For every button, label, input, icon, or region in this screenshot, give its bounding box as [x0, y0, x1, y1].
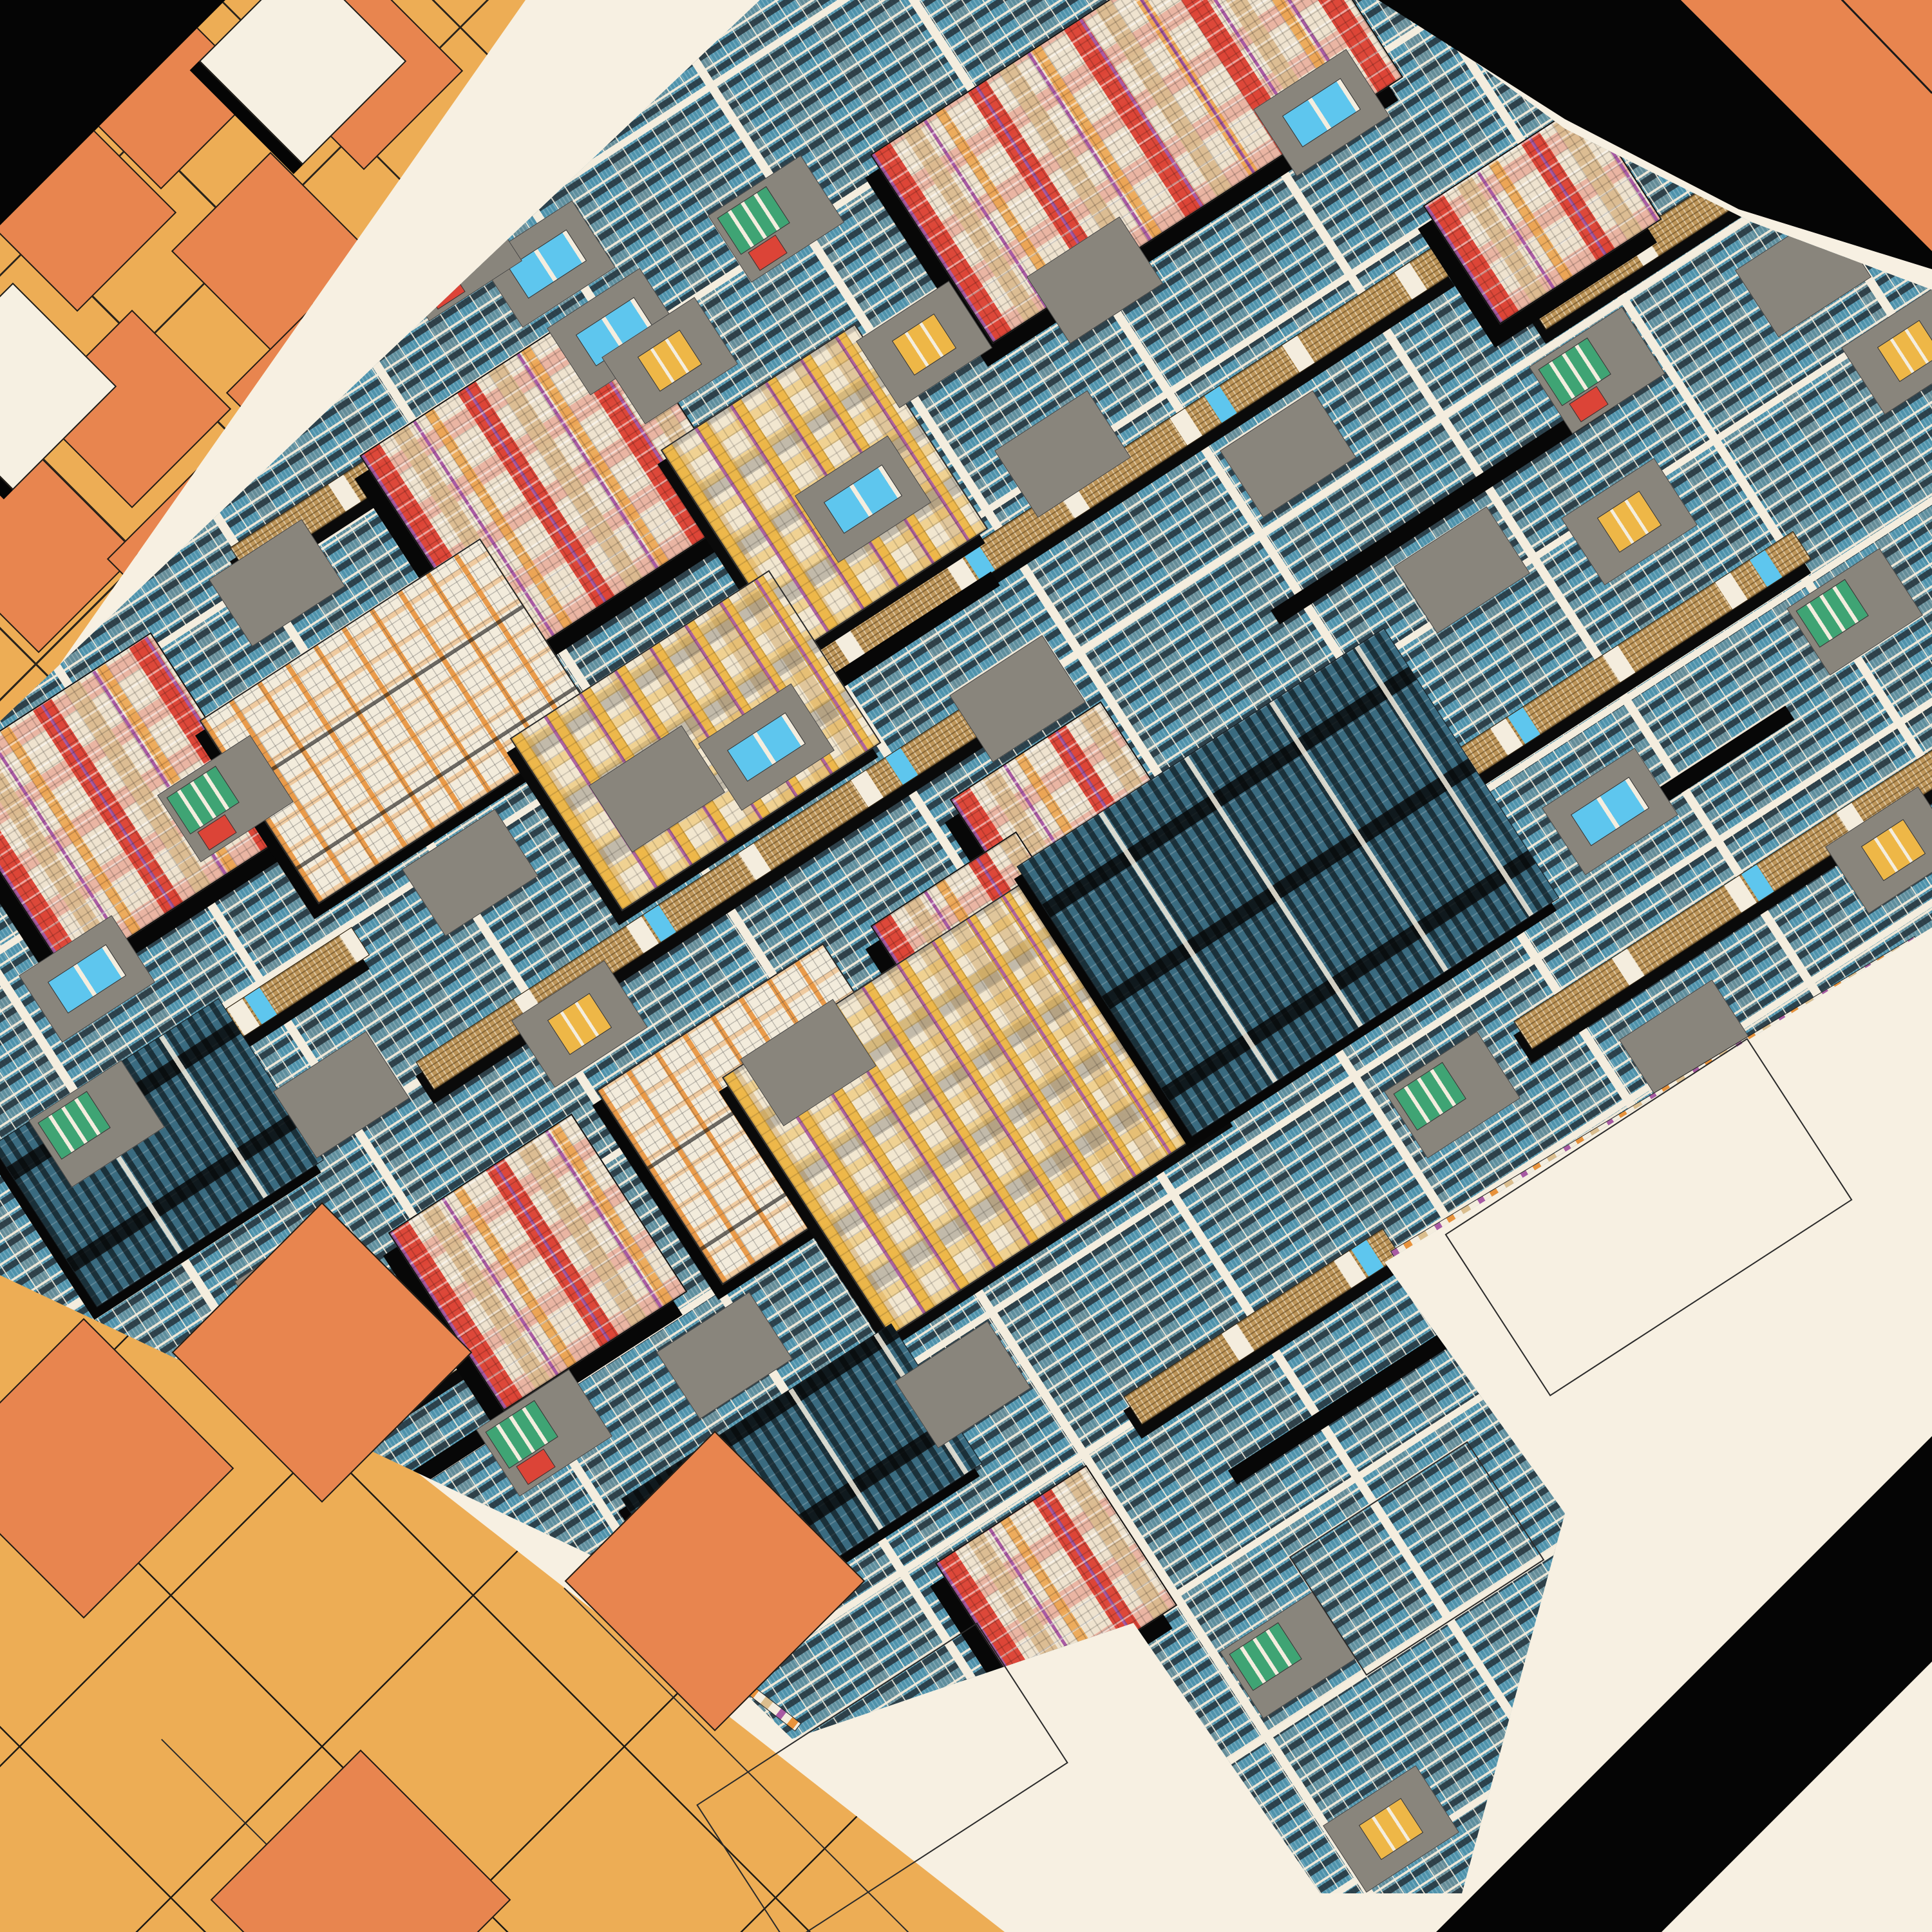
- artwork-canvas: [0, 0, 1932, 1932]
- outlined-parcel: [1444, 1038, 1852, 1397]
- outlined-parcel: [696, 1622, 1068, 1932]
- outlined-parcel: [1289, 1441, 1545, 1676]
- empty-parcels-bottom-right: [0, 0, 1932, 1932]
